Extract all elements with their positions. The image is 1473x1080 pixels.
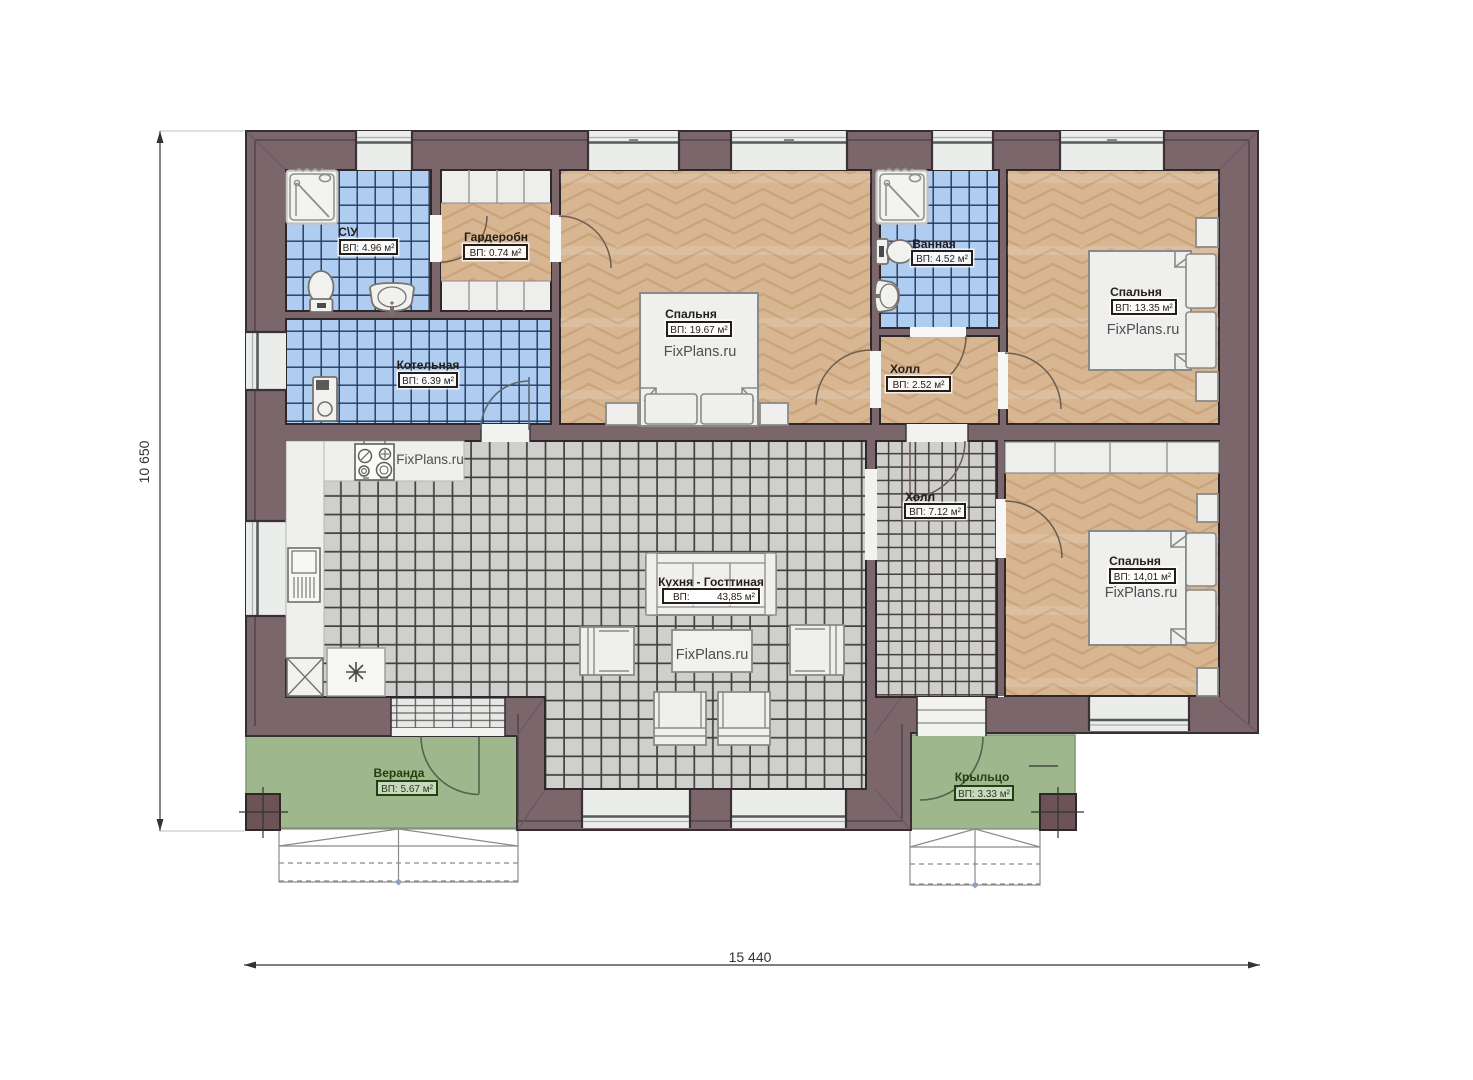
svg-text:ВП: 14,01 м²: ВП: 14,01 м² [1114,572,1172,583]
svg-text:Веранда: Веранда [374,766,425,780]
svg-text:Спальня: Спальня [1109,554,1161,568]
svg-text:FixPlans.ru: FixPlans.ru [664,344,737,360]
svg-text:ВП:: ВП: [673,592,690,603]
svg-text:15 440: 15 440 [729,949,772,965]
svg-text:ВП: 5.67 м²: ВП: 5.67 м² [381,784,434,795]
svg-text:FixPlans.ru: FixPlans.ru [1107,322,1180,338]
svg-text:Спальня: Спальня [1110,285,1162,299]
svg-text:FixPlans.ru: FixPlans.ru [1105,585,1178,601]
svg-text:10 650: 10 650 [136,440,152,483]
svg-text:С\У: С\У [338,225,358,239]
svg-text:Гардеробн: Гардеробн [464,230,528,244]
svg-text:ВП: 19.67 м²: ВП: 19.67 м² [670,325,728,336]
svg-text:ВП: 0.74 м²: ВП: 0.74 м² [470,248,523,259]
svg-text:Котельная: Котельная [397,358,460,372]
svg-text:Крыльцо: Крыльцо [955,770,1010,784]
svg-text:ВП: 6.39 м²: ВП: 6.39 м² [402,376,455,387]
svg-text:ВП: 3.33 м²: ВП: 3.33 м² [958,789,1011,800]
svg-text:Холл: Холл [890,362,920,376]
svg-text:FixPlans.ru: FixPlans.ru [396,452,464,467]
svg-text:43,85 м²: 43,85 м² [717,592,756,603]
svg-text:ВП: 4.52 м²: ВП: 4.52 м² [916,254,969,265]
svg-text:ВП: 4.96 м²: ВП: 4.96 м² [343,243,396,254]
svg-text:ВП: 13.35 м²: ВП: 13.35 м² [1115,303,1173,314]
svg-text:Спальня: Спальня [665,307,717,321]
svg-text:ВП: 2.52 м²: ВП: 2.52 м² [893,380,946,391]
svg-text:FixPlans.ru: FixPlans.ru [676,647,749,663]
svg-text:ВП: 7.12 м²: ВП: 7.12 м² [909,507,962,518]
